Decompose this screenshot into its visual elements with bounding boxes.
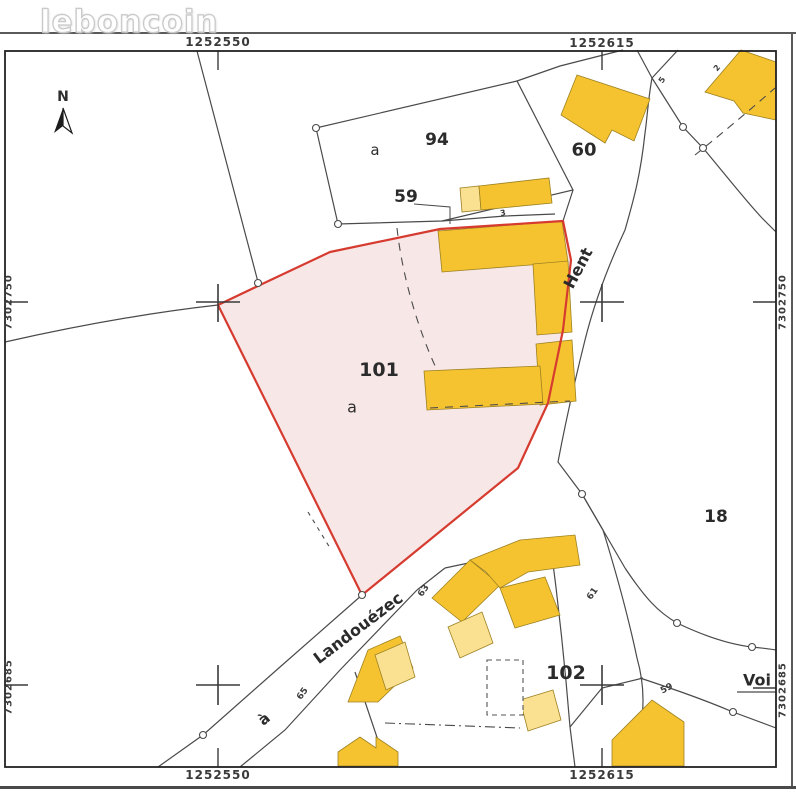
building: [561, 75, 650, 143]
vertex-circle: [335, 221, 342, 228]
survey-cross: [580, 284, 624, 322]
north-arrow-icon: [54, 108, 72, 133]
coord-label-bottom-left: 1252550: [185, 768, 250, 782]
vertex-circle: [730, 709, 737, 716]
parcel-18-boundary: [625, 568, 776, 650]
boundary-line: [197, 51, 258, 282]
coord-label-top-right: 1252615: [569, 36, 634, 50]
boundary-line: [563, 190, 573, 221]
building: [479, 178, 552, 210]
building-light: [460, 186, 481, 212]
vertex-circle: [313, 125, 320, 132]
coord-label-right-upper: 7302750: [778, 274, 789, 330]
street-label-voie: Voi: [743, 671, 771, 690]
survey-cross: [580, 665, 624, 705]
path-line: [5, 305, 218, 342]
building: [500, 577, 560, 628]
coord-label-left-upper: 7302750: [4, 274, 15, 330]
building: [338, 737, 398, 766]
boundary-line: [517, 50, 623, 81]
vertex-circle: [700, 145, 707, 152]
parcel-94-letter: a: [370, 141, 379, 159]
road-landouezec-nw: [158, 595, 362, 767]
building: [705, 50, 776, 120]
vertex-circle: [674, 620, 681, 627]
road-junction: [637, 50, 678, 78]
north-arrow-left: [54, 108, 63, 133]
coord-label-left-lower: 7302685: [4, 659, 15, 715]
cadastral-map-canvas: [0, 0, 796, 800]
coord-label-right-lower: 7302685: [778, 662, 789, 718]
vertex-circle: [749, 644, 756, 651]
parcel-101-area: [218, 221, 571, 595]
building: [612, 700, 684, 766]
parcel-101-letter: a: [347, 398, 357, 417]
north-label: N: [57, 89, 69, 105]
map-image[interactable]: leboncoin: [0, 0, 796, 800]
vertex-circle: [255, 280, 262, 287]
dash-dot-line: [385, 723, 520, 728]
vertex-circle: [680, 124, 687, 131]
parcel-101-label: 101: [359, 359, 399, 381]
dashed-building-outline: [487, 660, 523, 715]
building-light: [520, 690, 561, 731]
parcel-60-label: 60: [571, 140, 596, 161]
parcel-94-label: 94: [425, 130, 449, 150]
vertex-circle: [359, 592, 366, 599]
parcel-59-label: 59: [394, 187, 418, 207]
parcel-102-label: 102: [546, 662, 586, 684]
building-light: [448, 612, 493, 658]
north-arrow-right: [63, 108, 72, 133]
vertex-circle: [200, 732, 207, 739]
coord-label-bottom-right: 1252615: [569, 768, 634, 782]
vertex-circle: [579, 491, 586, 498]
survey-cross: [196, 665, 240, 705]
coord-label-top-left: 1252550: [185, 35, 250, 49]
parcel-18-label: 18: [704, 507, 728, 527]
